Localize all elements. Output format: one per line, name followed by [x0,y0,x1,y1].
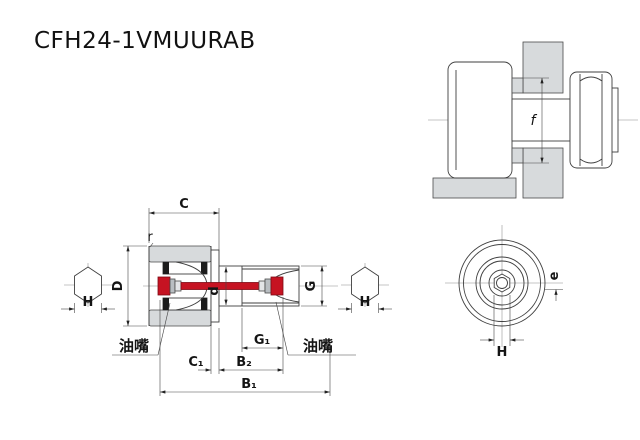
hex-detail-left: H [61,263,115,313]
end-view: e H [445,225,563,360]
seal-bottom-left [163,298,169,310]
roller-side [448,62,512,178]
nipple-cone-right-1 [265,279,271,293]
rail-block [433,178,516,198]
seal-top-right [201,262,207,274]
dim-label-G: G [304,281,319,292]
nipple-cone-right-2 [259,281,265,291]
grease-label-left: 油嘴 [119,337,149,355]
technical-drawing: C r D d G G₁ C₁ [0,0,640,440]
seal-top-left [163,262,169,274]
callout-leader-right [276,302,288,355]
dim-label-C: C [179,197,189,212]
hex-detail-right: H [338,263,392,313]
grease-nipple-left [158,277,170,295]
grease-nipple-right [271,277,283,295]
dim-label-H-left: H [83,295,94,310]
dim-label-r: r [147,230,153,245]
grease-label-right: 油嘴 [303,337,333,355]
nipple-cone-left-1 [170,279,175,293]
mount-plate-top [523,42,563,93]
dim-label-B2: B₂ [236,355,252,370]
drawing-page: CFH24-1VMUURAB [0,0,640,440]
dim-label-D: D [111,280,126,291]
dim-label-C1: C₁ [188,355,203,370]
dim-label-B1: B₁ [241,377,257,392]
dim-label-H-right: H [360,295,371,310]
seal-bottom-right [201,298,207,310]
dim-label-H-end: H [497,345,508,360]
stud-through-plate [512,99,570,141]
roller-outer-ring-top [149,246,211,262]
plate-boss-bottom [512,148,523,163]
hex-nut [570,72,612,168]
section-view: C r D d G G₁ C₁ [61,197,392,396]
nipple-cone-left-2 [175,281,181,291]
mounted-view: f [428,42,638,198]
dim-label-G1: G₁ [254,333,270,348]
dim-label-e: e [547,271,562,280]
roller-outer-ring-bottom [149,310,211,326]
drawing-title: CFH24-1VMUURAB [34,28,256,54]
plate-boss-top [512,78,523,93]
dim-label-d: d [207,286,222,295]
mount-plate-bottom [523,148,563,198]
